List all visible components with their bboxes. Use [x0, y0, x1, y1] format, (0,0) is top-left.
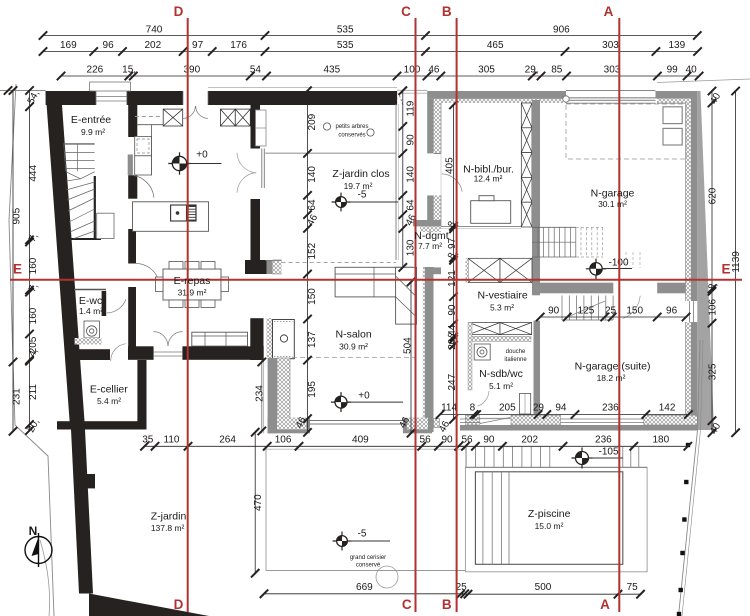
svg-text:90: 90 — [483, 435, 495, 446]
svg-text:176: 176 — [230, 40, 247, 51]
svg-text:303: 303 — [602, 40, 619, 51]
svg-text:15,: 15, — [122, 65, 136, 76]
svg-text:209: 209 — [307, 113, 318, 130]
svg-text:E-cellier: E-cellier — [90, 384, 128, 396]
svg-text:conservé: conservé — [356, 563, 381, 569]
svg-text:54: 54 — [250, 65, 262, 76]
svg-text:202: 202 — [521, 435, 538, 446]
svg-text:+0: +0 — [196, 150, 208, 161]
svg-text:8: 8 — [470, 403, 476, 414]
svg-text:Z-piscine: Z-piscine — [528, 508, 571, 520]
svg-text:1.4 m²: 1.4 m² — [79, 306, 103, 316]
svg-text:petits arbres: petits arbres — [335, 124, 368, 130]
svg-text:96: 96 — [103, 40, 115, 51]
svg-text:90: 90 — [548, 306, 560, 317]
svg-text:5.1 m²: 5.1 m² — [489, 381, 513, 391]
svg-text:325: 325 — [708, 363, 719, 380]
svg-text:N-garage (suite): N-garage (suite) — [575, 361, 651, 373]
svg-text:N: N — [29, 524, 38, 538]
svg-text:conservés: conservés — [338, 133, 365, 139]
svg-text:226: 226 — [87, 65, 104, 76]
svg-text:202: 202 — [144, 40, 161, 51]
svg-text:137.8 m²: 137.8 m² — [151, 523, 185, 533]
svg-text:C: C — [402, 597, 412, 612]
svg-text:5.4 m²: 5.4 m² — [97, 396, 121, 406]
svg-text:264: 264 — [219, 435, 236, 446]
svg-text:125: 125 — [578, 306, 595, 317]
svg-text:140: 140 — [307, 166, 318, 183]
svg-text:12.4 m²: 12.4 m² — [474, 174, 503, 184]
svg-text:31.9 m²: 31.9 m² — [178, 288, 207, 298]
svg-text:46: 46 — [428, 65, 440, 76]
svg-text:435: 435 — [323, 65, 340, 76]
svg-text:142: 142 — [659, 403, 676, 414]
svg-text:A: A — [604, 4, 614, 19]
svg-text:905: 905 — [12, 207, 23, 224]
svg-text:195: 195 — [307, 381, 318, 398]
svg-text:305: 305 — [478, 65, 495, 76]
svg-text:75: 75 — [627, 582, 639, 593]
svg-text:535: 535 — [337, 25, 354, 36]
svg-text:535: 535 — [337, 40, 354, 51]
svg-text:-5: -5 — [358, 190, 367, 201]
svg-text:B: B — [442, 597, 452, 612]
svg-text:236: 236 — [595, 435, 612, 446]
svg-text:85: 85 — [551, 65, 563, 76]
svg-text:56: 56 — [461, 435, 473, 446]
svg-text:236: 236 — [602, 403, 619, 414]
svg-text:211: 211 — [28, 384, 39, 400]
svg-text:99: 99 — [667, 65, 679, 76]
svg-text:56: 56 — [420, 435, 432, 446]
svg-text:64: 64 — [307, 199, 318, 211]
svg-text:D: D — [174, 597, 184, 612]
svg-text:150: 150 — [307, 288, 318, 305]
svg-text:470: 470 — [253, 494, 264, 511]
svg-text:E: E — [721, 262, 730, 277]
svg-text:150: 150 — [626, 306, 643, 317]
svg-text:N-sdb/wc: N-sdb/wc — [479, 368, 523, 380]
svg-text:160: 160 — [28, 257, 39, 274]
svg-text:29,: 29, — [525, 65, 539, 76]
svg-text:444: 444 — [28, 165, 39, 182]
svg-text:+0: +0 — [358, 391, 370, 402]
svg-text:18.2 m²: 18.2 m² — [597, 373, 626, 383]
svg-text:40: 40 — [686, 65, 698, 76]
svg-text:Z-jardin: Z-jardin — [151, 511, 187, 523]
svg-text:N-garage: N-garage — [591, 188, 635, 200]
svg-text:30.1 m²: 30.1 m² — [598, 199, 627, 209]
svg-text:B: B — [442, 4, 452, 19]
svg-text:169: 169 — [60, 40, 77, 51]
svg-text:9.9 m²: 9.9 m² — [81, 127, 105, 137]
svg-text:N-vestiaire: N-vestiaire — [478, 290, 528, 302]
svg-text:C: C — [401, 4, 411, 19]
svg-text:29: 29 — [533, 403, 545, 414]
svg-text:234: 234 — [255, 385, 266, 402]
svg-text:740: 740 — [146, 25, 163, 36]
svg-text:180: 180 — [652, 435, 669, 446]
svg-text:E-entrée: E-entrée — [71, 114, 111, 126]
svg-text:-105: -105 — [598, 447, 618, 458]
svg-text:5.3 m²: 5.3 m² — [490, 303, 514, 313]
svg-text:7.7 m²: 7.7 m² — [418, 241, 442, 251]
svg-text:N-salon: N-salon — [336, 329, 372, 341]
svg-text:137: 137 — [307, 331, 318, 348]
svg-text:303: 303 — [604, 65, 621, 76]
svg-text:E: E — [13, 262, 22, 277]
svg-text:100: 100 — [404, 65, 421, 76]
svg-text:90: 90 — [441, 435, 453, 446]
svg-text:96: 96 — [666, 306, 678, 317]
svg-text:35: 35 — [142, 435, 154, 446]
svg-text:500: 500 — [535, 582, 552, 593]
svg-text:231: 231 — [12, 388, 23, 405]
svg-text:110: 110 — [164, 435, 180, 446]
svg-text:390: 390 — [183, 65, 200, 76]
svg-text:669: 669 — [356, 582, 373, 593]
svg-text:465: 465 — [487, 40, 504, 51]
svg-text:D: D — [174, 4, 184, 19]
svg-text:douche: douche — [506, 349, 526, 355]
svg-text:504: 504 — [403, 337, 414, 354]
svg-text:160: 160 — [28, 307, 39, 324]
svg-text:114: 114 — [441, 403, 457, 414]
svg-text:139: 139 — [668, 40, 685, 51]
svg-text:Z-jardin clos: Z-jardin clos — [332, 168, 389, 180]
svg-text:grand cerisier: grand cerisier — [350, 555, 386, 561]
svg-text:97: 97 — [192, 40, 204, 51]
svg-text:A: A — [600, 597, 610, 612]
svg-text:106: 106 — [708, 299, 719, 316]
svg-text:-5: -5 — [358, 529, 367, 540]
svg-text:405: 405 — [445, 157, 456, 174]
svg-text:italienne: italienne — [504, 357, 527, 363]
svg-text:25: 25 — [605, 306, 617, 317]
svg-text:15.0 m²: 15.0 m² — [535, 521, 564, 531]
svg-text:94: 94 — [555, 403, 567, 414]
svg-text:906: 906 — [553, 25, 570, 36]
svg-text:620: 620 — [708, 187, 719, 204]
svg-text:1139: 1139 — [731, 251, 742, 273]
svg-text:409: 409 — [352, 435, 369, 446]
svg-text:205: 205 — [499, 403, 516, 414]
svg-text:106: 106 — [275, 435, 292, 446]
svg-text:152: 152 — [307, 242, 318, 259]
svg-text:E-repas: E-repas — [174, 275, 211, 287]
svg-text:30.9 m²: 30.9 m² — [339, 342, 368, 352]
